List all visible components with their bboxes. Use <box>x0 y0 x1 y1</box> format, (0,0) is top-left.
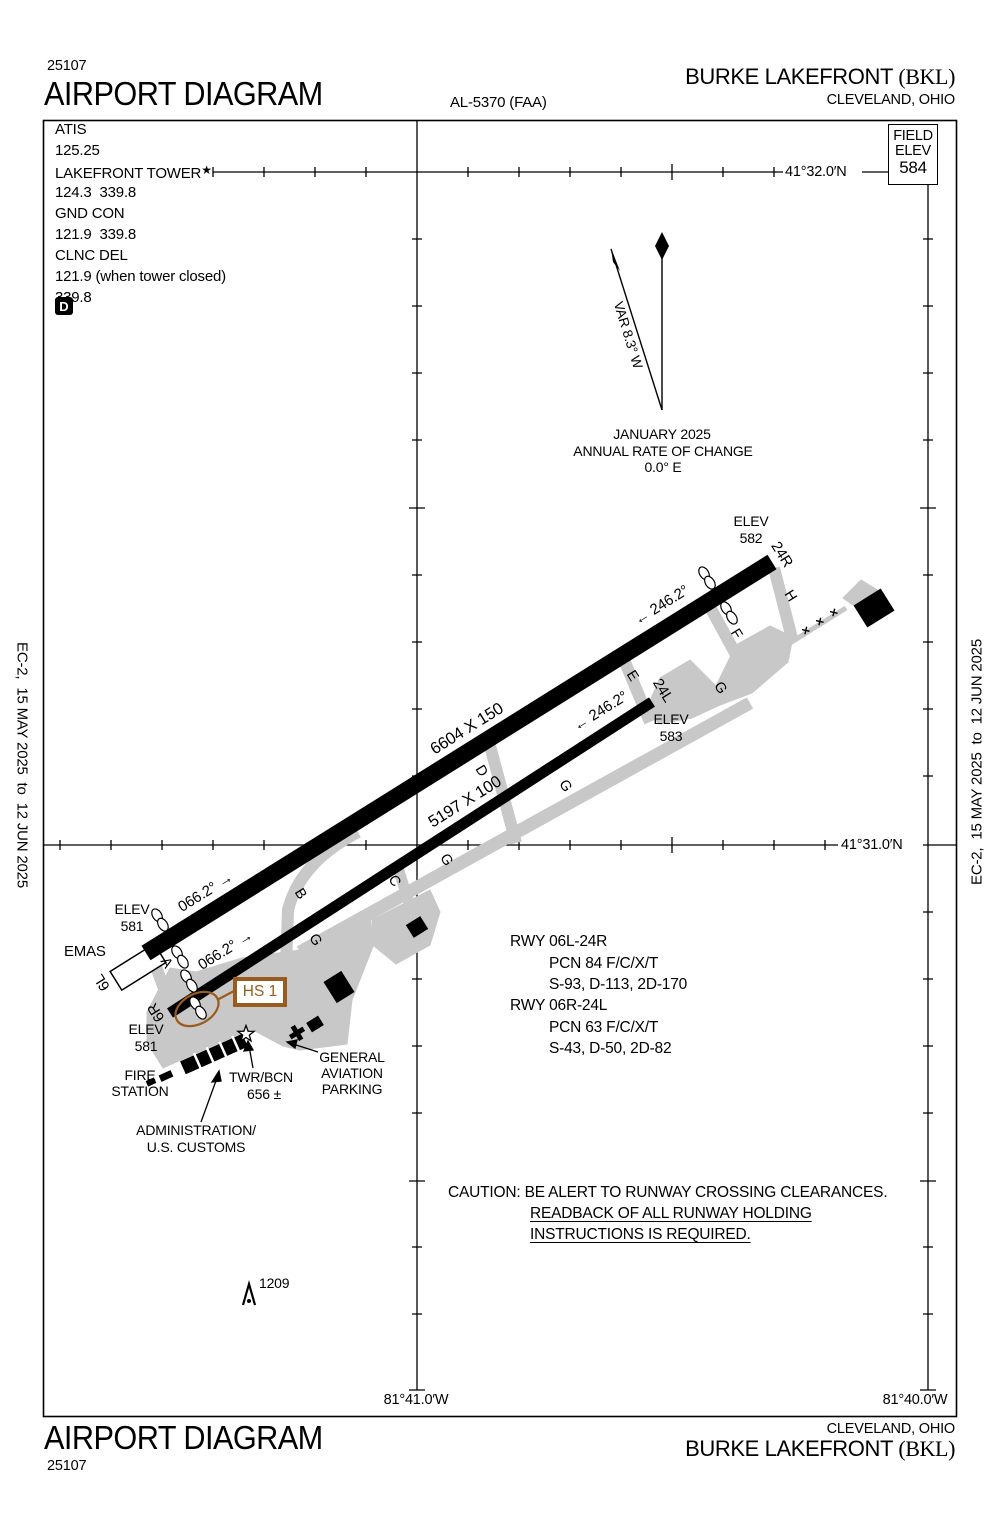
magnetic-north-barb-icon <box>611 248 620 271</box>
comm-tower-freq: 124.3 339.8 <box>55 185 136 202</box>
caution-line1: CAUTION: BE ALERT TO RUNWAY CROSSING CLE… <box>448 1184 887 1201</box>
field-elev-label1: FIELD <box>889 129 937 144</box>
runway-06l-24r <box>146 562 772 953</box>
datablock-rwy1-pcn: PCN 84 F/C/X/T <box>549 955 658 972</box>
obstacle-elevation: 1209 <box>259 1276 289 1292</box>
admin-arrow-head <box>212 1071 221 1082</box>
chart-code-bottom: 25107 <box>47 1458 86 1474</box>
caution-line3: INSTRUCTIONS IS REQUIRED. <box>530 1226 751 1243</box>
twr-bcn-label-2: 656 ± <box>247 1087 281 1103</box>
elev-word: ELEV <box>115 901 150 918</box>
comm-clnc-label: CLNC DEL <box>55 248 128 265</box>
elev-6l: ELEV581 <box>115 901 150 935</box>
ga-parking-label-2: AVIATION <box>321 1066 383 1082</box>
emas-label: EMAS <box>64 944 106 961</box>
fire-station-label-2: STATION <box>111 1084 168 1100</box>
datablock-rwy1-strength: S-93, D-113, 2D-170 <box>549 976 687 993</box>
ga-parking-label-1: GENERAL <box>319 1050 385 1066</box>
datablock-rwy1: RWY 06L-24R <box>510 933 607 950</box>
twr-bcn-label-1: TWR/BCN <box>229 1070 293 1086</box>
hotspot-hs1-label: HS 1 <box>243 983 277 1001</box>
admin-arrow-line <box>201 1078 217 1122</box>
elev-6l-value: 581 <box>115 918 150 935</box>
comm-gnd-label: GND CON <box>55 206 124 223</box>
fire-station-label-1: FIRE <box>124 1068 155 1084</box>
caution-line2: READBACK OF ALL RUNWAY HOLDING <box>530 1205 812 1222</box>
admin-label-1: ADMINISTRATION/ <box>136 1123 256 1139</box>
longitude-line-west <box>409 120 425 1390</box>
compass-rate-label: ANNUAL RATE OF CHANGE <box>573 444 752 460</box>
datablock-rwy2-strength: S-43, D-50, 2D-82 <box>549 1040 671 1057</box>
field-elev-box: FIELD ELEV 584 <box>888 124 938 185</box>
elev-word: ELEV <box>734 513 769 530</box>
elev-6r-value: 581 <box>129 1038 164 1055</box>
elev-6r: ELEV581 <box>129 1021 164 1055</box>
elev-word: ELEV <box>654 711 689 728</box>
comm-gnd-freq: 121.9 339.8 <box>55 227 136 244</box>
chart-code-top: 25107 <box>47 58 86 74</box>
elev-24l: ELEV583 <box>654 711 689 745</box>
obstacle-icon <box>243 1284 255 1305</box>
compass-date: JANUARY 2025 <box>613 427 710 443</box>
tower-star-icon: ★ <box>201 163 212 177</box>
lat-north-label: 41°32.0′N <box>785 164 847 180</box>
elev-word: ELEV <box>129 1021 164 1038</box>
elev-24r: ELEV582 <box>734 513 769 547</box>
ga-parking-label-3: PARKING <box>322 1082 383 1098</box>
compass-rate-value: 0.0° E <box>644 460 681 476</box>
d-atis-icon: D <box>55 297 73 315</box>
city-top: CLEVELAND, OHIO <box>827 92 955 108</box>
true-north-diamond-icon <box>655 232 669 260</box>
page-title-bottom: AIRPORT DIAGRAM <box>44 1420 323 1457</box>
lon-west-label: 81°41.0′W <box>384 1392 449 1408</box>
page-title-top: AIRPORT DIAGRAM <box>44 76 323 113</box>
city-bottom: CLEVELAND, OHIO <box>827 1421 955 1437</box>
comm-tower-label: LAKEFRONT TOWER★ <box>55 164 212 183</box>
airport-name-text-bottom: BURKE LAKEFRONT <box>685 1436 898 1461</box>
admin-label-2: U.S. CUSTOMS <box>147 1140 245 1156</box>
airport-name-top: BURKE LAKEFRONT (BKL) <box>685 65 955 90</box>
diagram-graphics <box>0 0 1000 1533</box>
elev-24r-value: 582 <box>734 530 769 547</box>
comm-atis-label: ATIS <box>55 122 86 139</box>
lat-south-label: 41°31.0′N <box>841 837 903 853</box>
comm-atis-freq: 125.25 <box>55 143 100 160</box>
lon-east-label: 81°40.0′W <box>883 1392 948 1408</box>
tower-label-text: LAKEFRONT TOWER <box>55 165 201 182</box>
airport-name-text: BURKE LAKEFRONT <box>685 64 898 89</box>
al-number: AL-5370 (FAA) <box>450 95 547 112</box>
airport-icao-text-bottom: (BKL) <box>898 1436 955 1461</box>
longitude-line-east <box>920 185 936 1390</box>
airport-icao-text: (BKL) <box>898 64 955 89</box>
datablock-rwy2: RWY 06R-24L <box>510 997 607 1014</box>
airport-diagram-page: 25107 AIRPORT DIAGRAM AL-5370 (FAA) BURK… <box>0 0 1000 1533</box>
fire-station-building <box>159 1070 174 1082</box>
edition-text-right: EC-2, 15 MAY 2025 to 12 JUN 2025 <box>970 639 987 885</box>
field-elev-label2: ELEV <box>889 144 937 159</box>
comm-clnc-freq: 121.9 (when tower closed) <box>55 269 226 286</box>
datablock-rwy2-pcn: PCN 63 F/C/X/T <box>549 1019 658 1036</box>
hotspot-hs1-box: HS 1 <box>233 977 287 1007</box>
edition-text-left: EC-2, 15 MAY 2025 to 12 JUN 2025 <box>13 642 30 888</box>
field-elev-value: 584 <box>889 159 937 177</box>
airport-name-bottom: BURKE LAKEFRONT (BKL) <box>685 1437 955 1462</box>
taxiway-junction-pad <box>645 626 793 724</box>
elev-24l-value: 583 <box>654 728 689 745</box>
